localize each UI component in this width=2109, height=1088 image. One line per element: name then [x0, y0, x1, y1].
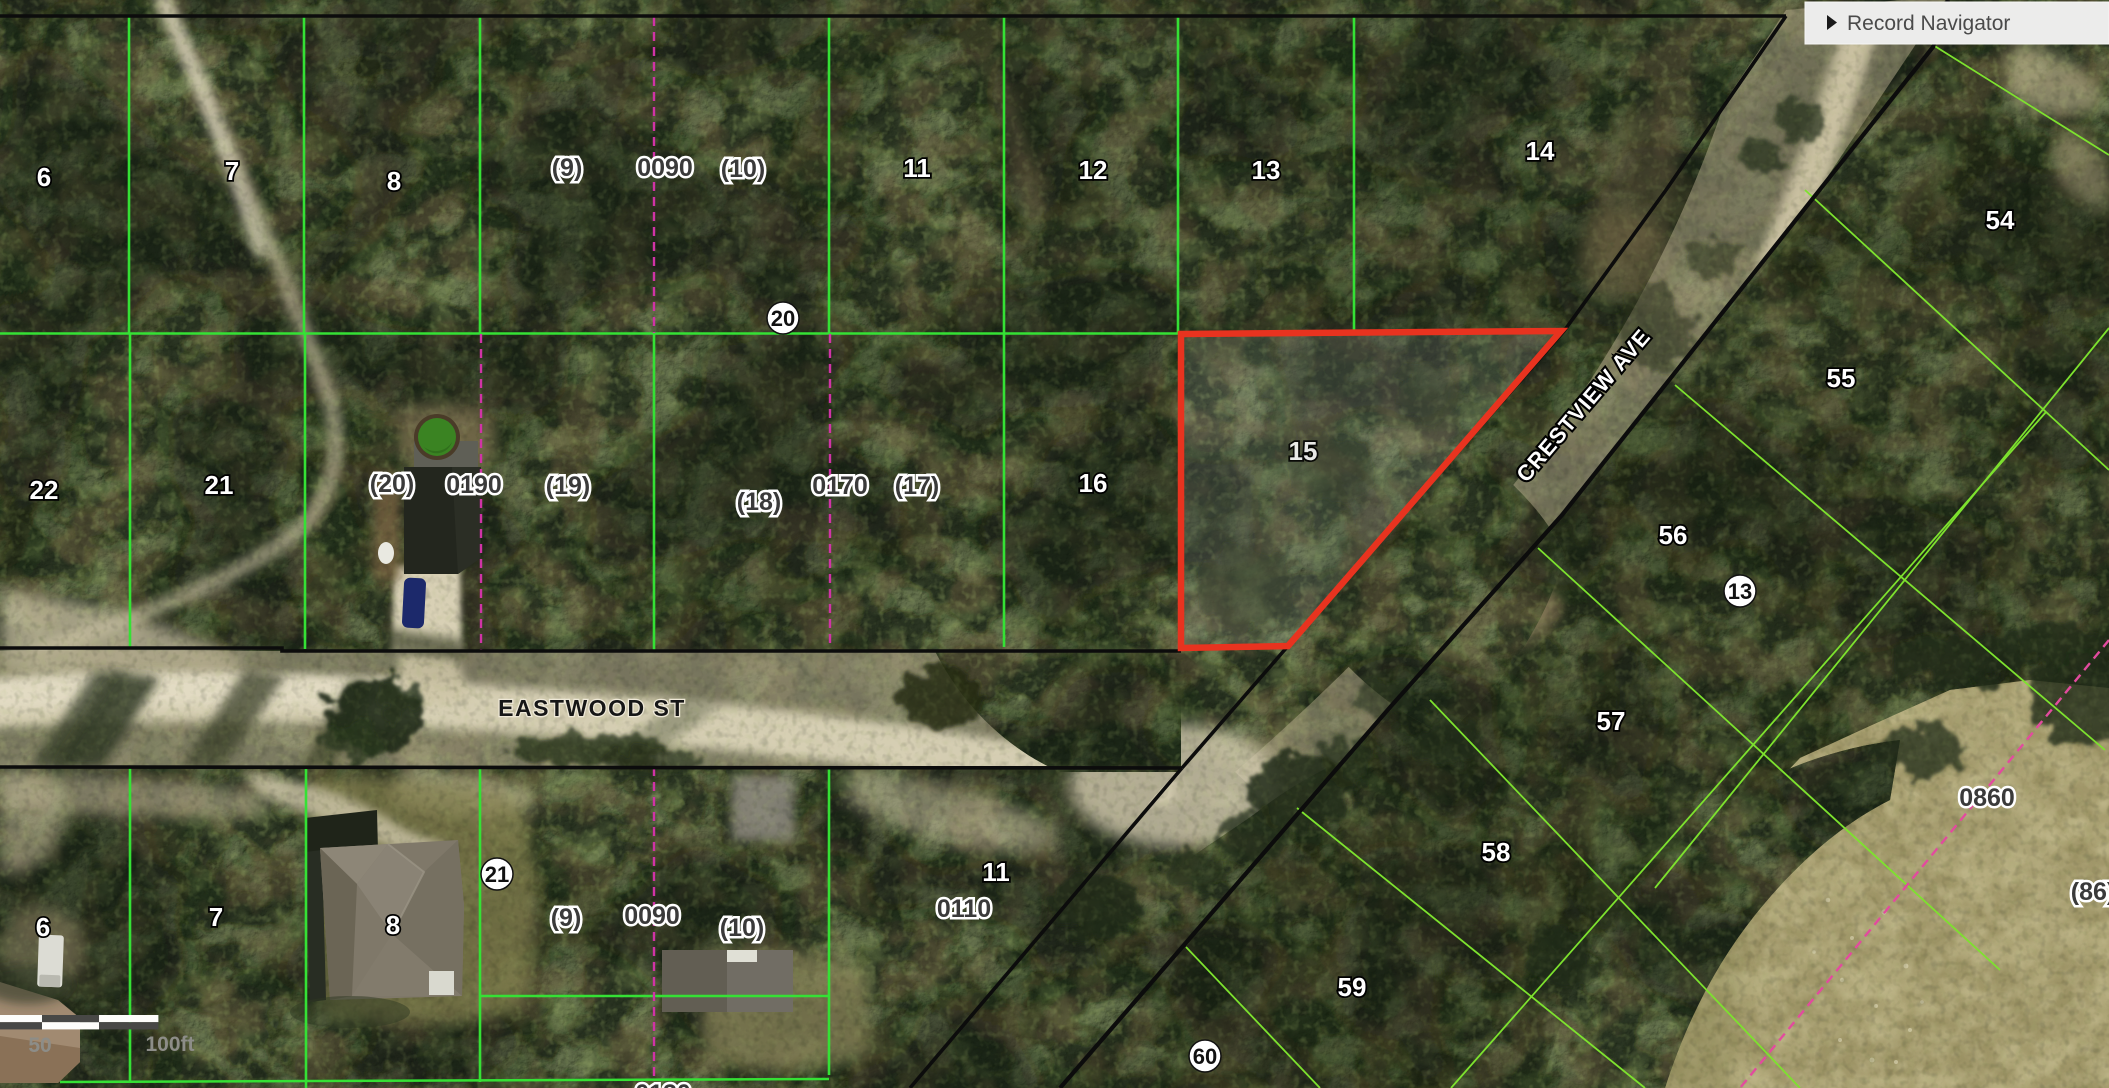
- svg-text:100ft: 100ft: [145, 1033, 194, 1056]
- svg-text:(10): (10): [720, 914, 764, 942]
- svg-text:(20): (20): [370, 470, 414, 498]
- svg-text:0130: 0130: [635, 1080, 691, 1088]
- svg-text:16: 16: [1079, 468, 1108, 498]
- svg-text:11: 11: [903, 153, 931, 183]
- svg-text:6: 6: [36, 912, 50, 942]
- svg-text:60: 60: [1193, 1044, 1217, 1069]
- svg-text:58: 58: [1482, 837, 1511, 867]
- svg-text:(17): (17): [895, 472, 939, 500]
- svg-text:20: 20: [771, 306, 795, 331]
- svg-text:0860: 0860: [1959, 784, 2015, 812]
- svg-text:EASTWOOD ST: EASTWOOD ST: [498, 695, 686, 721]
- svg-text:0190: 0190: [446, 471, 502, 499]
- svg-text:12: 12: [1079, 155, 1108, 185]
- svg-text:22: 22: [30, 475, 59, 505]
- svg-text:(9): (9): [552, 154, 583, 182]
- svg-text:50: 50: [28, 1034, 51, 1057]
- svg-text:11: 11: [982, 857, 1010, 887]
- svg-text:21: 21: [205, 470, 234, 500]
- svg-text:(86): (86): [2071, 878, 2109, 906]
- svg-text:15: 15: [1289, 436, 1318, 466]
- svg-text:55: 55: [1827, 363, 1856, 393]
- svg-text:(10): (10): [721, 155, 765, 183]
- svg-text:Record Navigator: Record Navigator: [1847, 12, 2010, 35]
- svg-text:(9): (9): [551, 904, 582, 932]
- svg-text:0170: 0170: [812, 472, 868, 500]
- svg-text:6: 6: [37, 162, 51, 192]
- svg-text:0090: 0090: [624, 902, 680, 930]
- svg-text:59: 59: [1338, 972, 1367, 1002]
- svg-text:14: 14: [1526, 136, 1555, 166]
- svg-text:0090: 0090: [637, 154, 693, 182]
- svg-text:7: 7: [225, 156, 239, 186]
- svg-text:57: 57: [1597, 706, 1626, 736]
- svg-text:8: 8: [387, 166, 401, 196]
- svg-text:(18): (18): [737, 488, 781, 516]
- svg-text:8: 8: [386, 910, 400, 940]
- svg-text:54: 54: [1986, 205, 2015, 235]
- svg-text:0110: 0110: [937, 895, 991, 923]
- svg-text:13: 13: [1252, 155, 1281, 185]
- svg-text:7: 7: [209, 902, 223, 932]
- svg-text:13: 13: [1728, 579, 1752, 604]
- svg-text:(19): (19): [546, 472, 590, 500]
- svg-text:21: 21: [485, 862, 509, 887]
- svg-text:56: 56: [1659, 520, 1688, 550]
